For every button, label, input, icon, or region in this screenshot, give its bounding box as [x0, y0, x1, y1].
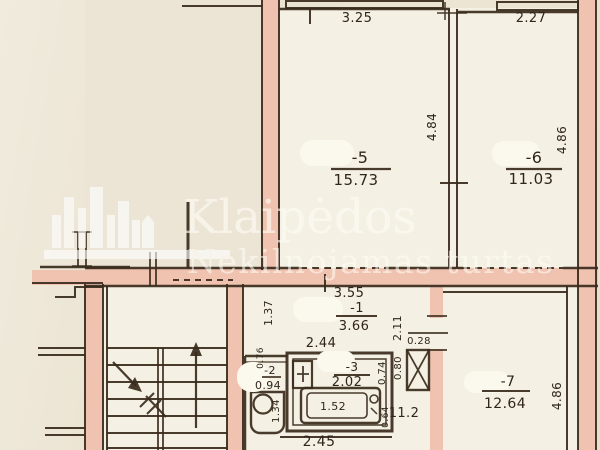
dim-corridor-mid: 2.44	[306, 336, 337, 351]
dim-duct-top: 0.28	[407, 336, 431, 347]
corridor-area: 3.66	[339, 319, 370, 334]
wc-area: 0.94	[255, 379, 281, 392]
dim-duct-side: 0.80	[393, 356, 404, 380]
dim-corridor-nook: 1.37	[262, 300, 275, 326]
logo-bar	[132, 220, 140, 248]
logo-bar	[107, 215, 115, 248]
wall-room7-left	[430, 284, 443, 450]
room5-number: -5	[352, 148, 369, 167]
logo-tower	[142, 215, 154, 248]
corridor-number: -1	[350, 301, 364, 316]
dim-tub-length: 1.52	[320, 400, 346, 413]
wall-outer-right	[578, 0, 596, 450]
dim-corridor-side: 2.11	[391, 315, 404, 341]
blob-room5	[300, 140, 354, 166]
watermark-brand-subtitle: Nekilnojamas turtas	[187, 242, 555, 281]
dim-room5-depth: 4.84	[425, 113, 439, 141]
balcony-room5	[286, 1, 443, 8]
logo-bar	[78, 208, 86, 248]
wall-stair-left	[85, 284, 103, 450]
room5-area: 15.73	[334, 171, 379, 189]
logo-bar	[52, 215, 61, 248]
dim-hall-side: 0.64	[381, 406, 391, 428]
logo-bar	[64, 197, 74, 248]
floor-plan-drawing: 3.25 2.27 -5 15.73 4.84 -6 11.03 4.86 3.…	[0, 0, 600, 450]
floor-plan-scan: 3.25 2.27 -5 15.73 4.84 -6 11.03 4.86 3.…	[0, 0, 600, 450]
room6-number: -6	[526, 148, 543, 167]
room6-area: 11.03	[509, 170, 554, 188]
wc-number: -2	[264, 364, 276, 377]
dim-room5-width: 3.25	[342, 11, 373, 26]
dim-bath-bottom: 2.45	[303, 434, 336, 450]
bathroom-area: 2.02	[332, 375, 363, 390]
dim-room6-depth: 4.86	[555, 126, 569, 154]
dim-wc-side: 1.34	[271, 399, 282, 423]
stair-left-stubs	[38, 348, 85, 435]
dim-corridor-top: 3.55	[334, 286, 365, 301]
dim-room7-depth: 4.86	[550, 382, 564, 410]
room7-number: -7	[501, 374, 516, 390]
dim-room6-width: 2.27	[516, 11, 547, 26]
dim-bath-side: 0.74	[377, 361, 388, 385]
logo-bar	[90, 187, 103, 248]
bathroom-number: -3	[346, 360, 359, 374]
room7-area: 12.64	[484, 396, 526, 412]
watermark-brand-name: Klaipėdos	[183, 190, 417, 245]
logo-bar	[118, 201, 129, 248]
dim-hall: 11.2	[389, 406, 420, 421]
